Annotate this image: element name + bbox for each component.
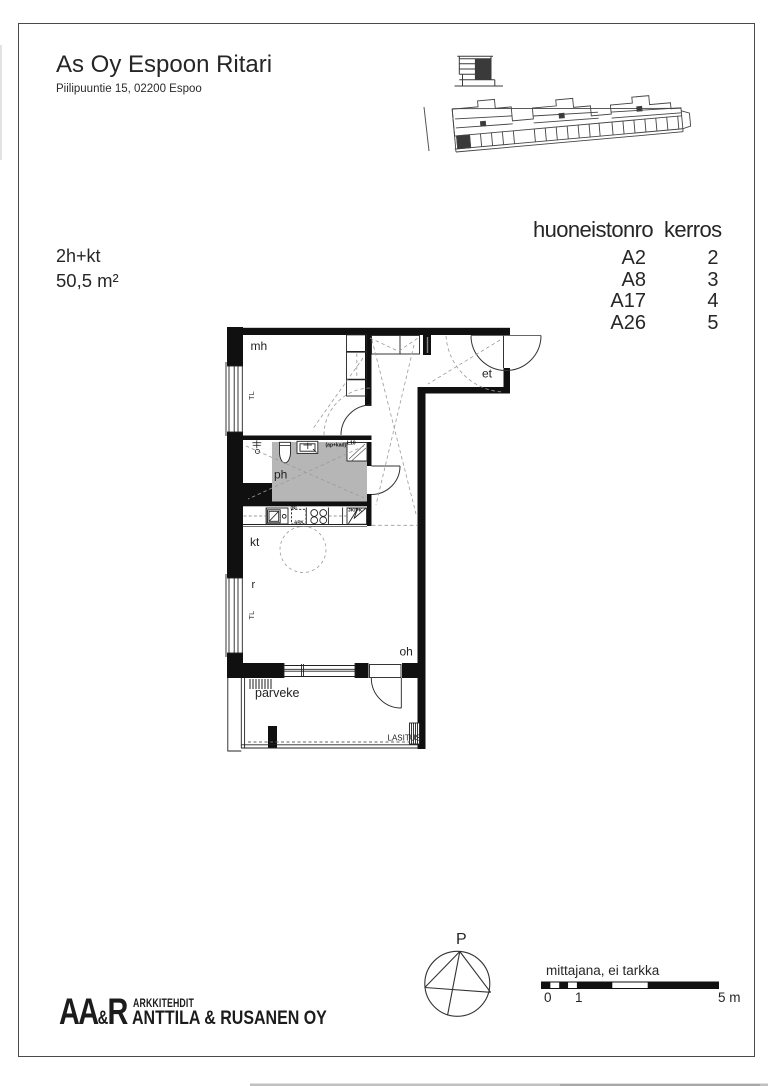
svg-text:parveke: parveke — [255, 686, 300, 700]
svg-text:TL: TL — [247, 391, 256, 400]
svg-text:kt: kt — [250, 535, 260, 549]
svg-text:L10: L10 — [347, 440, 356, 446]
svg-text:r: r — [252, 579, 256, 591]
svg-text:LASITUS: LASITUS — [388, 734, 421, 743]
svg-text:(ap+kad): (ap+kad) — [326, 442, 347, 448]
svg-text:JK/PK: JK/PK — [348, 508, 363, 514]
svg-text:et: et — [482, 367, 493, 381]
svg-text:APK: APK — [294, 519, 304, 524]
svg-text:ph: ph — [274, 468, 287, 482]
svg-text:(N): (N) — [291, 505, 298, 510]
svg-text:oh: oh — [400, 645, 413, 659]
svg-text:TL: TL — [247, 611, 256, 620]
svg-text:mh: mh — [251, 339, 268, 353]
